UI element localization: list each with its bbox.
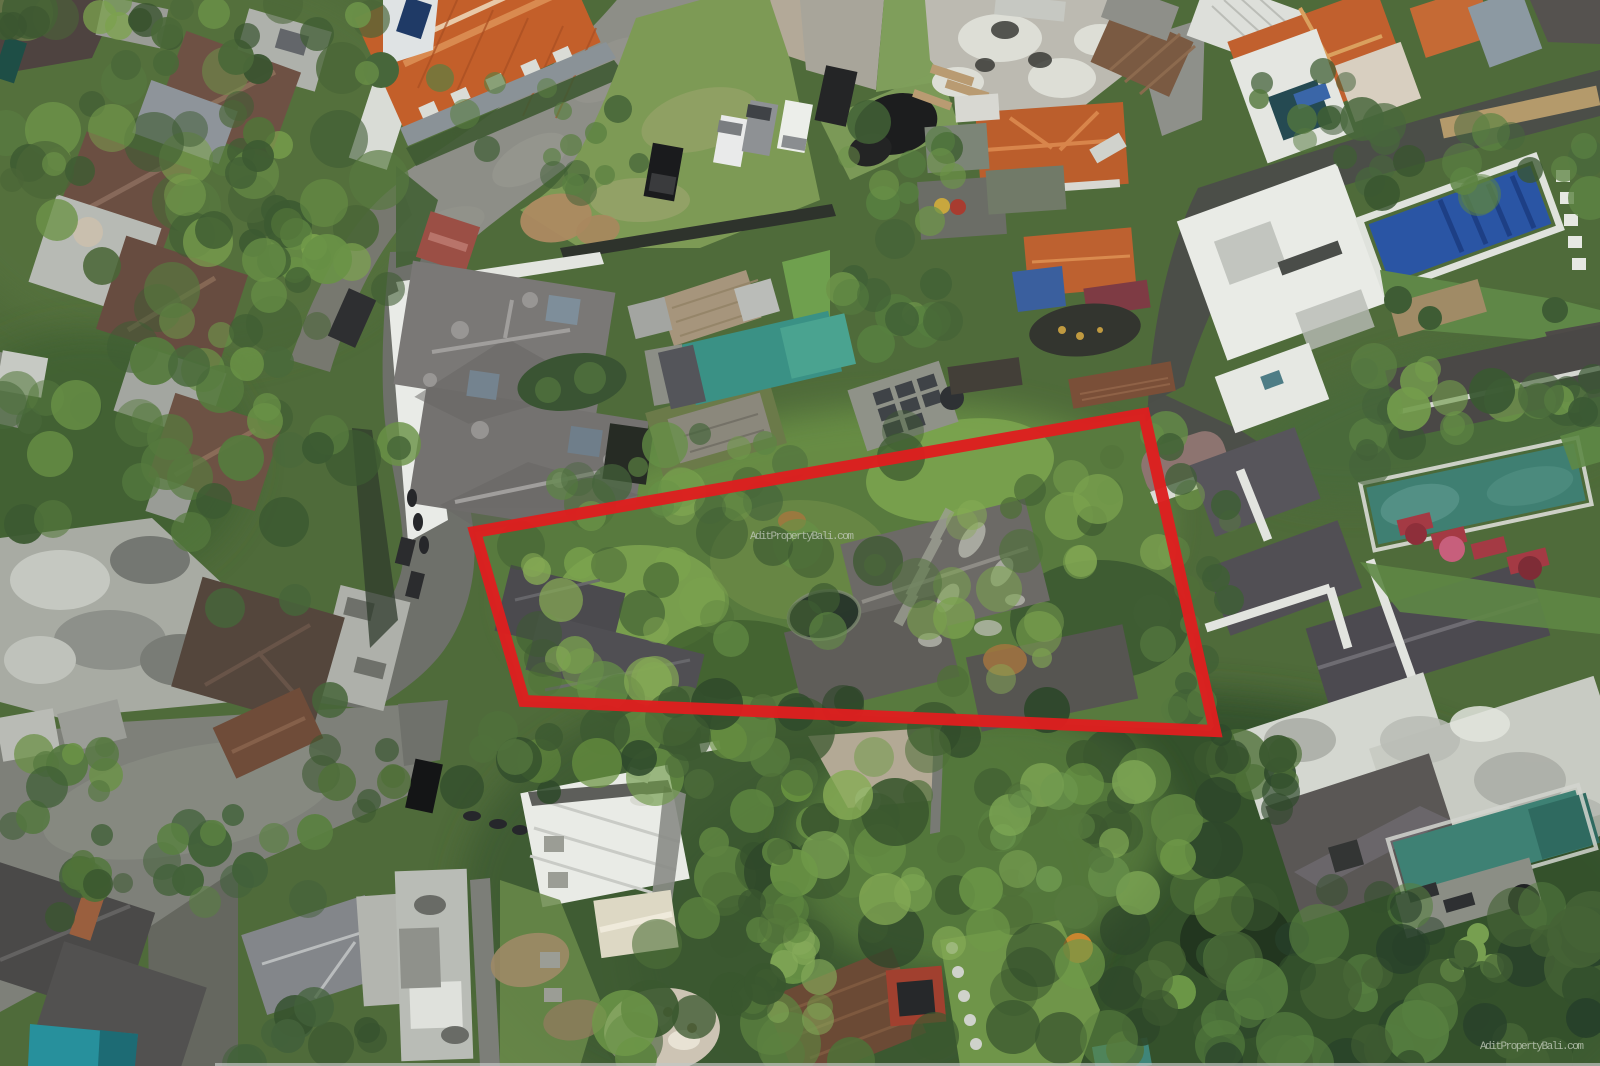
svg-text:AditPropertyBali.com: AditPropertyBali.com	[750, 531, 854, 543]
svg-text:AditPropertyBali.com: AditPropertyBali.com	[1480, 1041, 1584, 1053]
